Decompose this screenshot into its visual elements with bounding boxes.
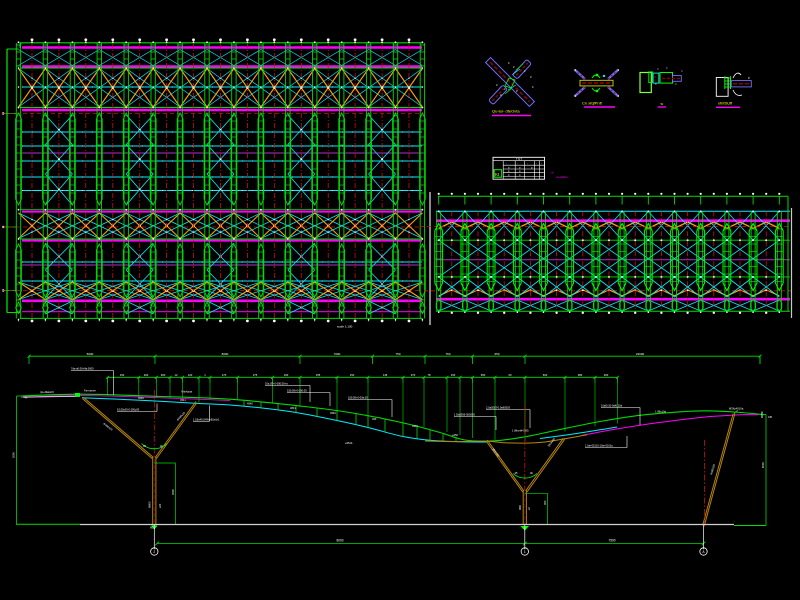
svg-text:M3Xp4X10a: M3Xp4X10a [729,407,744,411]
svg-text:◄: ◄ [616,68,619,72]
svg-text:8000: 8000 [222,352,229,356]
svg-text:uf: uf [551,171,554,175]
svg-text:345: 345 [768,416,773,419]
svg-text:1.0a+01010-10a+0101a: 1.0a+01010-10a+0101a [585,444,613,448]
svg-text:60: 60 [509,373,512,377]
svg-text:7da-a0.00+ffa.0000: 7da-a0.00+ffa.0000 [71,367,94,371]
svg-text:4841: 4841 [290,406,296,410]
svg-text:1: 1 [524,550,526,554]
svg-text:150: 150 [350,373,355,377]
svg-text:wuwfwfn: wuwfwfn [556,175,568,179]
svg-text:459: 459 [372,417,377,421]
svg-text:1 (Ma-d#-008): 1 (Ma-d#-008) [512,429,529,433]
svg-text:10a.05+0-050.05+a: 10a.05+0-050.05+a [265,382,288,386]
svg-text:2: 2 [153,550,155,554]
svg-text:5500: 5500 [12,452,16,458]
svg-text:Fan-anver: Fan-anver [84,389,96,393]
svg-text:1 Da0505-000505: 1 Da0505-000505 [454,413,475,417]
svg-text:160.05+0-03a.05: 160.05+0-03a.05 [348,396,368,400]
svg-text:8000: 8000 [336,539,343,543]
svg-text:◄: ◄ [573,68,576,72]
svg-text:150: 150 [120,373,125,377]
svg-text:78: 78 [428,373,431,377]
svg-text:150: 150 [451,373,456,377]
svg-text:≠: ≠ [748,76,750,80]
svg-text:160: 160 [284,373,289,377]
svg-text:4340: 4340 [412,424,418,428]
svg-text:Qu-lar- dfeOvta: Qu-lar- dfeOvta [492,109,520,114]
svg-text:1.1Bx40.5-RfxxB1x0x1: 1.1Bx40.5-RfxxB1x0x1 [193,418,220,422]
svg-text:760: 760 [445,352,450,356]
svg-text:3500: 3500 [171,489,175,495]
svg-text:◄: ◄ [573,94,576,98]
svg-text:Φ600: Φ600 [148,501,152,508]
svg-text:(ps-dilatstrf): (ps-dilatstrf) [40,390,54,394]
svg-text:T N T: T N T [516,158,522,161]
svg-text:175: 175 [253,373,258,377]
svg-text:650: 650 [494,352,499,356]
svg-text:12: 12 [175,373,178,377]
svg-text:4540: 4540 [247,402,253,406]
svg-text:120: 120 [188,373,193,377]
svg-text:300: 300 [543,500,547,505]
svg-text:scale 1:100: scale 1:100 [337,325,353,329]
svg-text:200: 200 [144,373,149,377]
svg-text:150.05+0-050.05: 150.05+0-050.05 [287,389,307,393]
svg-text:148: 148 [383,373,388,377]
svg-text:Φ60: Φ60 [518,504,522,510]
svg-text:380: 380 [578,373,583,377]
svg-text:2.0a0503-0.0a60503: 2.0a0503-0.0a60503 [486,406,511,410]
svg-text:24000: 24000 [636,352,645,356]
svg-text:4540: 4540 [330,411,336,415]
svg-text:7500: 7500 [608,539,615,543]
svg-text:650: 650 [481,373,486,377]
svg-text:Cn xfqfPnft: Cn xfqfPnft [582,101,603,106]
svg-text:9.150y05-0.050y05: 9.150y05-0.050y05 [117,408,140,412]
svg-text:4541: 4541 [180,398,186,402]
svg-text:1.0Bx10a: 1.0Bx10a [655,410,667,414]
svg-text:⌀351b: ⌀351b [345,441,353,445]
svg-text:5000: 5000 [87,352,94,356]
svg-text:KI: KI [495,172,499,177]
svg-text:170: 170 [222,373,227,377]
svg-text:⌀450: ⌀450 [452,433,458,437]
svg-text:300: 300 [161,373,166,377]
svg-text:xfnfSUff: xfnfSUff [718,101,733,106]
svg-text:300: 300 [604,373,609,377]
svg-text:4540: 4540 [138,396,144,400]
svg-text:155: 155 [316,373,321,377]
svg-text:10af0.10-0af0.10a: 10af0.10-0af0.10a [601,404,623,408]
svg-text:600: 600 [543,373,548,377]
svg-text:750: 750 [395,352,400,356]
svg-text:◄: ◄ [616,94,619,98]
svg-text:370: 370 [411,373,416,377]
svg-text:x20: x20 [158,503,162,508]
svg-text:6000: 6000 [761,462,765,468]
svg-text:f fibvfgvta: f fibvfgvta [181,390,193,394]
svg-text:7000: 7000 [334,352,341,356]
